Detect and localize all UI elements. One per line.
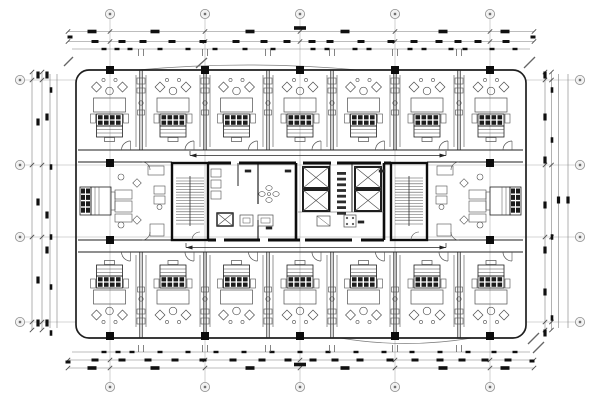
grid-bubble-label (579, 79, 581, 81)
grid-bubble-label (204, 386, 206, 388)
end-suite-right (436, 162, 521, 240)
grid-bubble-label (19, 321, 21, 323)
grid-bubble-label (579, 236, 581, 238)
grid-bubble-label (394, 13, 396, 15)
guest-rooms-bottom (91, 252, 513, 338)
grid-bubble-label (19, 79, 21, 81)
floor-plan-canvas (0, 0, 600, 400)
grid-bubble-label (579, 321, 581, 323)
guest-rooms-top (91, 70, 513, 150)
grid-bubble-label (109, 386, 111, 388)
interior-walls (78, 150, 523, 252)
grid-bubble-label (489, 13, 491, 15)
core (172, 163, 427, 240)
grid-bubble-label (19, 164, 21, 166)
grid-bubble-label (19, 236, 21, 238)
grid-bubble-label (109, 13, 111, 15)
grid-bubble-label (299, 386, 301, 388)
end-suite-left (80, 162, 165, 240)
floor-plan-drawing (0, 0, 600, 400)
grid-bubble-label (394, 386, 396, 388)
grid-bubble-label (299, 13, 301, 15)
grid-bubble-label (489, 386, 491, 388)
grid-bubble-label (204, 13, 206, 15)
grid-bubble-label (579, 164, 581, 166)
